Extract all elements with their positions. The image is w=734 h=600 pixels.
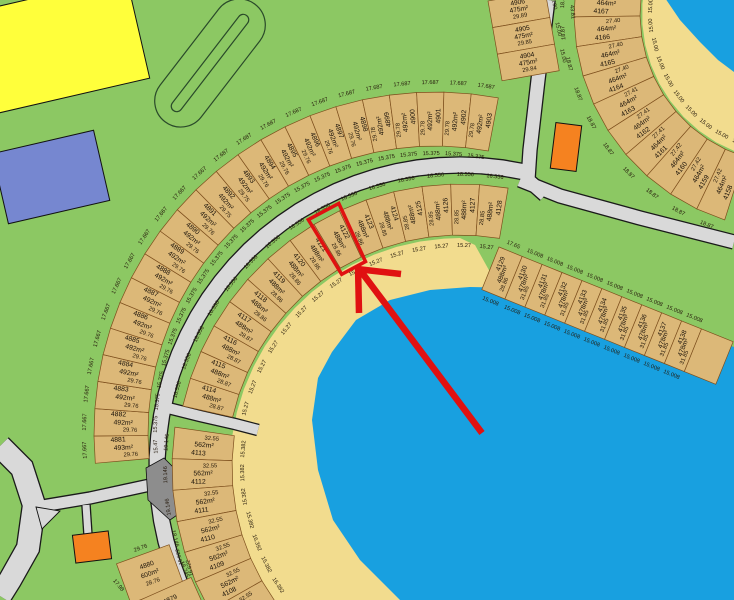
lot-number-label: 4166 — [595, 34, 611, 42]
shore-dimension-label: 15.00 — [648, 0, 655, 13]
lot-number-label: 4112 — [191, 479, 206, 486]
lot-area-label: 488m² — [461, 200, 468, 220]
lot-number-label: 4900 — [409, 109, 417, 125]
lot-number-label: 4127 — [469, 197, 476, 212]
lot-number-label: 4126 — [442, 197, 450, 213]
lot-number-label: 4881 — [110, 436, 126, 444]
inner-dimension-label: 15.47 — [153, 439, 160, 453]
inner-dimension-label: 15.375 — [423, 151, 440, 157]
lot-number-label: 4167 — [593, 8, 609, 16]
lot-area-label: 492m² — [427, 111, 434, 131]
lot-dimension-label: 29.78 — [420, 121, 426, 136]
lot-dimension-label: 28.85 — [454, 210, 460, 225]
lot-area-label: 492m² — [452, 111, 460, 131]
lot-area-label: 492m² — [113, 419, 133, 427]
lot-dimension-label: 29.76 — [123, 452, 138, 459]
lot-number-label: 4901 — [435, 108, 442, 123]
street-dimension-label: 18.87 — [560, 0, 567, 8]
subdivision-map: 4881493m²29.7615.4717.6674882492m²29.761… — [0, 0, 734, 600]
lot-dimension-label: 27.40 — [606, 18, 621, 25]
inner-dimension-label: 15.375 — [153, 416, 160, 433]
lot-number-label: 4882 — [111, 411, 127, 418]
lot-dimension-label: 28.85 — [428, 211, 435, 226]
street — [86, 505, 88, 535]
shore-dimension-label: 15.00 — [648, 18, 655, 32]
outer-dimension-label: 17.687 — [422, 80, 439, 86]
outer-dimension-label: 17.667 — [82, 441, 89, 458]
outer-dimension-label: 17.667 — [82, 413, 89, 430]
shore-dimension-label: 15.382 — [240, 464, 246, 481]
inner-dimension-label: 15.375 — [445, 151, 462, 158]
lot-number-label: 4902 — [460, 109, 468, 125]
outer-dimension-label: 17.687 — [449, 80, 466, 87]
shore-dimension-label: 15.27 — [457, 243, 471, 249]
street-dimension-label: 18.556 — [457, 172, 474, 178]
lot-dimension-label: 32.55 — [204, 435, 219, 442]
street-dimension-label: 19.146 — [163, 466, 169, 483]
orange-feature-parcel-north[interactable] — [550, 123, 581, 172]
shore-dimension-label: 15.27 — [434, 243, 448, 250]
lot-dimension-label: 32.55 — [203, 463, 218, 469]
lot-area-label: 562m² — [193, 470, 213, 477]
lot-area-label: 493m² — [114, 444, 134, 452]
lot-dimension-label: 29.78 — [445, 121, 452, 136]
map-canvas: 4881493m²29.7615.4717.6674882492m²29.761… — [0, 0, 734, 600]
lot-dimension-label: 29.76 — [123, 427, 138, 433]
lot-number-label: 4113 — [191, 449, 206, 457]
orange-feature-parcel-south[interactable] — [72, 531, 111, 563]
lot-area-label: 464m² — [596, 0, 616, 8]
